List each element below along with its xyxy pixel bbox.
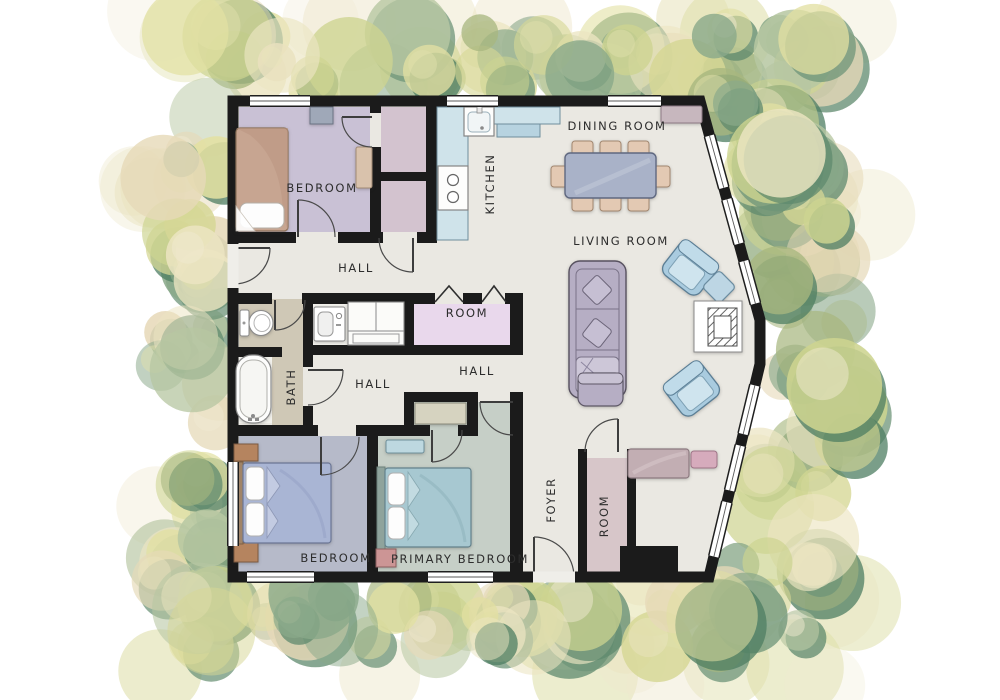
cushion-icon [691, 451, 717, 468]
armchair-gray-icon [578, 373, 623, 406]
sideboard-icon [661, 106, 702, 123]
room-label-hall-top: HALL [338, 261, 374, 275]
room-label-hall-right: HALL [459, 364, 495, 378]
room-label-dining-room: DINING ROOM [567, 119, 666, 133]
room-label-bedroom-bl: BEDROOM [300, 551, 371, 565]
room-label-room-foyer: ROOM [597, 495, 611, 537]
wardrobe-icon [348, 302, 404, 345]
bed-pillow [388, 473, 405, 505]
fireplace-icon [694, 301, 742, 352]
floor-bath-corridor [272, 299, 303, 425]
room-label-living-room: LIVING ROOM [573, 234, 669, 248]
bed-pillow [246, 503, 264, 536]
floor-plan-canvas: BEDROOM KITCHEN DINING ROOM LIVING ROOM … [0, 0, 1000, 700]
bench-table-icon [386, 440, 424, 453]
bathtub-icon [236, 355, 271, 423]
bed-headboard [377, 467, 385, 549]
desk-icon [356, 147, 372, 188]
floor-closet-a [381, 107, 426, 172]
stove-icon [438, 166, 468, 210]
dresser-icon [415, 403, 466, 424]
room-label-bath: BATH [284, 369, 298, 406]
room-label-hall-left: HALL [355, 377, 391, 391]
nightstand-icon [234, 444, 258, 461]
bed-pillow [388, 507, 405, 539]
kitchen-island-counter [497, 124, 540, 137]
washing-machine-icon [314, 307, 345, 341]
room-label-foyer: FOYER [544, 477, 558, 522]
room-label-room-mid: ROOM [446, 306, 488, 320]
floor-plan-drawing [0, 0, 1000, 700]
room-label-primary-bedroom: PRIMARY BEDROOM [391, 552, 529, 566]
dresser-icon [310, 107, 333, 124]
room-label-kitchen: KITCHEN [483, 153, 497, 214]
floor-closet-b [381, 181, 426, 232]
room-label-bedroom-tl: BEDROOM [286, 181, 357, 195]
toilet-icon [240, 310, 273, 336]
kitchen-sink-icon [464, 106, 494, 136]
bed-pillow [246, 467, 264, 500]
